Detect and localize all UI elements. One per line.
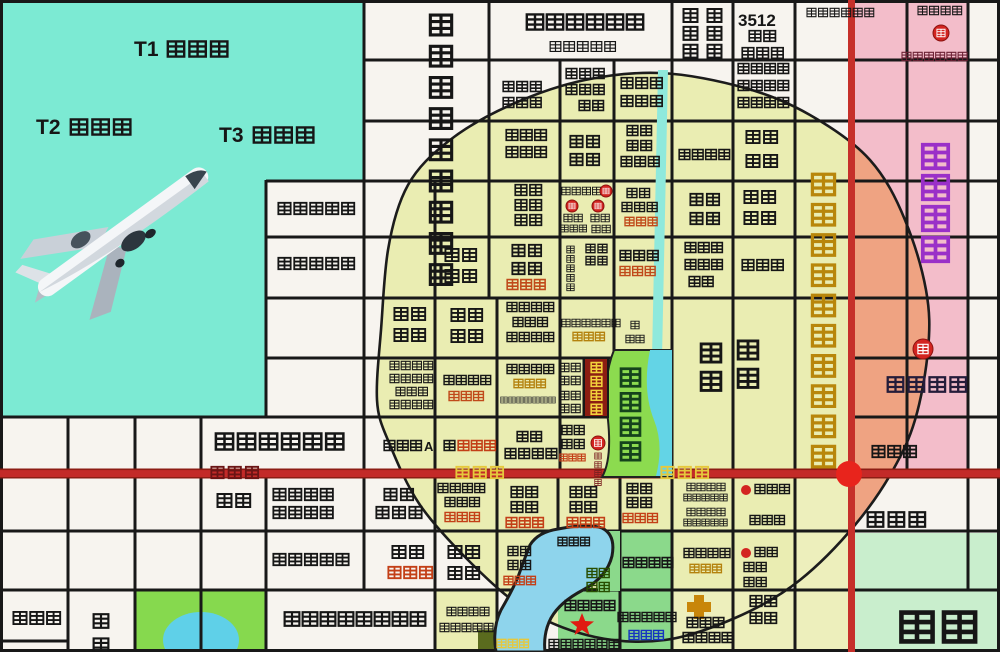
svg-text:T2: T2 [36, 116, 61, 139]
svg-text:T3: T3 [219, 124, 244, 147]
svg-text:3512: 3512 [738, 11, 776, 30]
svg-text:AI: AI [424, 439, 437, 454]
svg-text:T1: T1 [134, 38, 159, 61]
